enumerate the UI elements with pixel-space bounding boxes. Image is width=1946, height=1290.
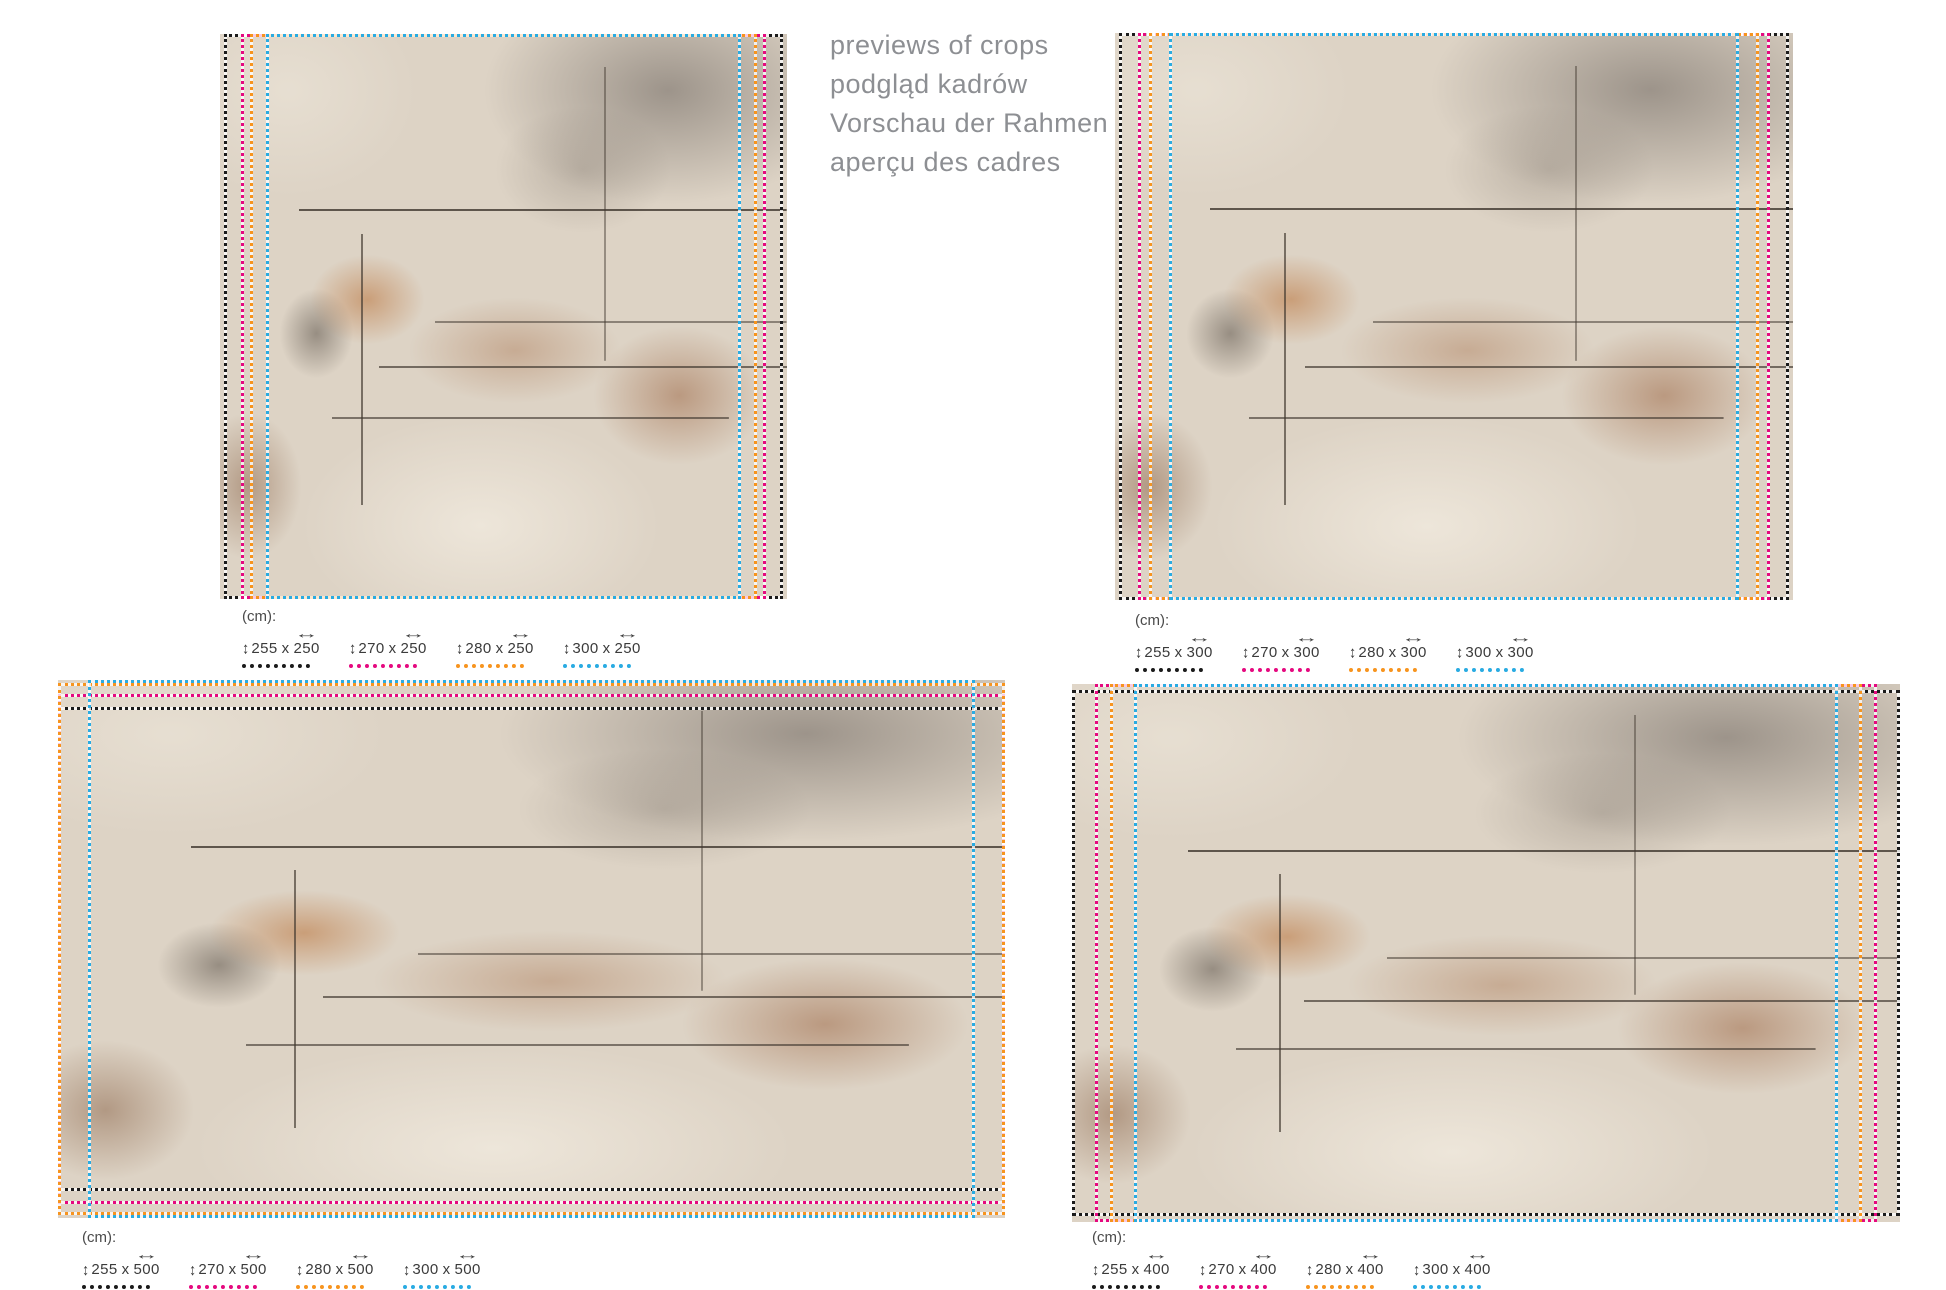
height-arrows-icon: ↕ (1242, 643, 1249, 661)
width-arrows-icon: ↔ (1251, 1247, 1276, 1262)
title-fr: aperçu des cadres (830, 143, 1108, 182)
times-separator: x (1282, 644, 1290, 661)
width-arrows-icon: ↔ (294, 626, 319, 641)
height-arrows-icon: ↕ (242, 639, 249, 657)
dotted-sample-orange (1349, 668, 1417, 672)
size-option: ↕ 255 x ↔250 (242, 640, 349, 668)
dotted-sample-pink (1242, 668, 1310, 672)
dotted-sample-pink (349, 664, 417, 668)
size-option: ↕ 255 x ↔500 (82, 1261, 189, 1289)
width-value: 500 (455, 1261, 481, 1278)
crop-frame-blue (88, 680, 975, 1218)
unit-label: (cm): (82, 1229, 510, 1246)
height-arrows-icon: ↕ (296, 1260, 303, 1278)
width-value: 250 (401, 640, 427, 657)
dotted-sample-blue (403, 1285, 471, 1289)
height-arrows-icon: ↕ (1135, 643, 1142, 661)
dotted-sample-black (82, 1285, 150, 1289)
crop-frame-blue (1134, 684, 1838, 1222)
height-arrows-icon: ↕ (1349, 643, 1356, 661)
size-option: ↕ 270 x ↔400 (1199, 1261, 1306, 1289)
title-en: previews of crops (830, 26, 1108, 65)
width-arrows-icon: ↔ (241, 1247, 266, 1262)
size-option: ↕ 300 x ↔500 (403, 1261, 510, 1289)
height-value: 270 (358, 640, 384, 657)
title-de: Vorschau der Rahmen (830, 104, 1108, 143)
width-arrows-icon: ↔ (1358, 1247, 1383, 1262)
size-option: ↕ 280 x ↔400 (1306, 1261, 1413, 1289)
width-arrows-icon: ↔ (1144, 1247, 1169, 1262)
size-option: ↕ 255 x ↔300 (1135, 644, 1242, 672)
title-pl: podgląd kadrów (830, 65, 1108, 104)
width-arrows-icon: ↔ (401, 626, 426, 641)
height-value: 270 (1251, 644, 1277, 661)
times-separator: x (389, 640, 397, 657)
width-value: 300 (1401, 644, 1427, 661)
width-arrows-icon: ↔ (1508, 630, 1533, 645)
height-value: 280 (1315, 1261, 1341, 1278)
dotted-sample-orange (1306, 1285, 1374, 1289)
height-value: 270 (1208, 1261, 1234, 1278)
times-separator: x (1175, 644, 1183, 661)
height-arrows-icon: ↕ (349, 639, 356, 657)
size-option: ↕ 300 x ↔300 (1456, 644, 1563, 672)
height-value: 280 (1358, 644, 1384, 661)
size-option: ↕ 270 x ↔500 (189, 1261, 296, 1289)
width-arrows-icon: ↔ (455, 1247, 480, 1262)
width-value: 400 (1358, 1261, 1384, 1278)
width-value: 400 (1144, 1261, 1170, 1278)
size-legend-300: (cm): ↕ 255 x ↔300 ↕ 270 x ↔300 (1135, 612, 1563, 672)
size-legend-250: (cm): ↕ 255 x ↔250 ↕ 270 x ↔250 (242, 608, 670, 668)
times-separator: x (443, 1261, 451, 1278)
height-arrows-icon: ↕ (1306, 1260, 1313, 1278)
height-arrows-icon: ↕ (1456, 643, 1463, 661)
width-arrows-icon: ↔ (1294, 630, 1319, 645)
height-value: 300 (1465, 644, 1491, 661)
dotted-sample-orange (296, 1285, 364, 1289)
dotted-sample-blue (563, 664, 631, 668)
dotted-sample-black (1135, 668, 1203, 672)
size-option: ↕ 270 x ↔250 (349, 640, 456, 668)
times-separator: x (1132, 1261, 1140, 1278)
width-value: 250 (294, 640, 320, 657)
times-separator: x (282, 640, 290, 657)
width-value: 400 (1465, 1261, 1491, 1278)
width-arrows-icon: ↔ (508, 626, 533, 641)
preview-panel-500 (58, 680, 1005, 1218)
height-arrows-icon: ↕ (1413, 1260, 1420, 1278)
height-value: 255 (91, 1261, 117, 1278)
crop-frame-blue (1169, 33, 1739, 600)
times-separator: x (1346, 1261, 1354, 1278)
height-value: 280 (305, 1261, 331, 1278)
width-value: 500 (348, 1261, 374, 1278)
times-separator: x (496, 640, 504, 657)
size-legend-400: (cm): ↕ 255 x ↔400 ↕ 270 x ↔400 (1092, 1229, 1520, 1289)
width-value: 250 (508, 640, 534, 657)
size-option: ↕ 280 x ↔250 (456, 640, 563, 668)
width-value: 500 (134, 1261, 160, 1278)
dotted-sample-orange (456, 664, 524, 668)
width-value: 300 (1294, 644, 1320, 661)
size-option: ↕ 300 x ↔400 (1413, 1261, 1520, 1289)
width-arrows-icon: ↔ (615, 626, 640, 641)
dotted-sample-blue (1456, 668, 1524, 672)
height-value: 300 (412, 1261, 438, 1278)
width-arrows-icon: ↔ (134, 1247, 159, 1262)
dotted-sample-pink (189, 1285, 257, 1289)
crop-preview-sheet: previews of crops podgląd kadrów Vorscha… (0, 0, 1946, 1290)
size-option: ↕ 280 x ↔300 (1349, 644, 1456, 672)
preview-panel-400 (1072, 684, 1900, 1222)
height-arrows-icon: ↕ (403, 1260, 410, 1278)
unit-label: (cm): (1092, 1229, 1520, 1246)
preview-panel-300 (1115, 33, 1793, 600)
height-value: 255 (1144, 644, 1170, 661)
width-value: 400 (1251, 1261, 1277, 1278)
multilingual-title: previews of crops podgląd kadrów Vorscha… (830, 26, 1108, 182)
size-legend-500: (cm): ↕ 255 x ↔500 ↕ 270 x ↔500 (82, 1229, 510, 1289)
height-arrows-icon: ↕ (189, 1260, 196, 1278)
width-arrows-icon: ↔ (1401, 630, 1426, 645)
preview-panel-250 (220, 34, 787, 599)
width-value: 300 (1187, 644, 1213, 661)
height-value: 280 (465, 640, 491, 657)
dotted-sample-black (242, 664, 310, 668)
size-option: ↕ 270 x ↔300 (1242, 644, 1349, 672)
width-value: 500 (241, 1261, 267, 1278)
dotted-sample-blue (1413, 1285, 1481, 1289)
times-separator: x (1239, 1261, 1247, 1278)
dotted-sample-pink (1199, 1285, 1267, 1289)
times-separator: x (229, 1261, 237, 1278)
width-arrows-icon: ↔ (1187, 630, 1212, 645)
height-arrows-icon: ↕ (563, 639, 570, 657)
height-value: 255 (1101, 1261, 1127, 1278)
unit-label: (cm): (242, 608, 670, 625)
times-separator: x (336, 1261, 344, 1278)
unit-label: (cm): (1135, 612, 1563, 629)
width-value: 250 (615, 640, 641, 657)
height-arrows-icon: ↕ (456, 639, 463, 657)
size-option: ↕ 300 x ↔250 (563, 640, 670, 668)
height-value: 255 (251, 640, 277, 657)
width-arrows-icon: ↔ (348, 1247, 373, 1262)
height-value: 300 (1422, 1261, 1448, 1278)
times-separator: x (603, 640, 611, 657)
times-separator: x (1453, 1261, 1461, 1278)
height-arrows-icon: ↕ (1199, 1260, 1206, 1278)
height-arrows-icon: ↕ (1092, 1260, 1099, 1278)
height-arrows-icon: ↕ (82, 1260, 89, 1278)
times-separator: x (1389, 644, 1397, 661)
size-option: ↕ 255 x ↔400 (1092, 1261, 1199, 1289)
width-value: 300 (1508, 644, 1534, 661)
dotted-sample-black (1092, 1285, 1160, 1289)
size-option: ↕ 280 x ↔500 (296, 1261, 403, 1289)
times-separator: x (122, 1261, 130, 1278)
height-value: 270 (198, 1261, 224, 1278)
times-separator: x (1496, 644, 1504, 661)
height-value: 300 (572, 640, 598, 657)
crop-frame-blue (266, 34, 741, 599)
width-arrows-icon: ↔ (1465, 1247, 1490, 1262)
